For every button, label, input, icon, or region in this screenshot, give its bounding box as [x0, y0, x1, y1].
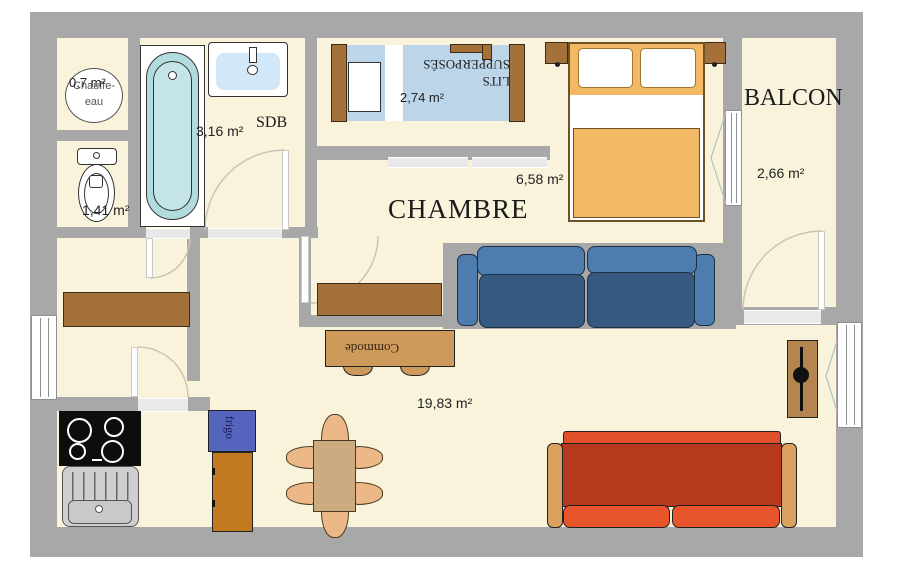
- balcon-name: BALCON: [744, 85, 843, 112]
- wall-wc-sdb: [128, 38, 140, 230]
- living-area: 19,83 m²: [417, 395, 472, 411]
- blue-sofa-seat-cushion-1: [479, 274, 585, 328]
- tv-stand: [793, 367, 809, 383]
- sdb-door-threshold: [208, 228, 282, 239]
- sdb-area: 3,16 m²: [196, 123, 243, 139]
- kitchen-sink-drainer-lines: [72, 472, 129, 500]
- bunk-bed-pillow: [348, 62, 381, 112]
- shelf-entry: [63, 292, 190, 327]
- nightstand-left-knob: [555, 62, 560, 67]
- alcove-sliding-panel-2: [472, 157, 547, 168]
- window-chambre-balcon: [725, 110, 742, 206]
- sdb-name: SDB: [256, 114, 287, 132]
- wall-below-wc: [57, 227, 146, 238]
- nightstand-left: [545, 42, 568, 64]
- dining-table: [313, 440, 356, 512]
- chambre-name: CHAMBRE: [388, 194, 529, 225]
- stove-burner-bl: [69, 443, 86, 460]
- balcon-door-threshold: [744, 310, 821, 324]
- entry-door-threshold: [138, 398, 188, 412]
- wc-area: 1,41 m²: [82, 202, 129, 218]
- chauffe-eau-label-line2: eau: [65, 96, 123, 108]
- balcon-area: 2,66 m²: [757, 165, 804, 181]
- bunk-alcove-area: 2,74 m²: [400, 90, 444, 105]
- wall-below-sdb-mid: [190, 227, 208, 238]
- alcove-sliding-panel-1: [388, 157, 468, 168]
- blue-sofa-back-cushion-2: [587, 246, 697, 274]
- nightstand-right-knob: [712, 62, 717, 67]
- wall-kitchen-left: [57, 397, 138, 411]
- stove-burner-tr: [104, 417, 124, 437]
- blue-sofa-back-cushion-1: [477, 246, 585, 276]
- washbasin-faucet: [249, 47, 257, 63]
- wall-chambre-nook: [300, 315, 457, 327]
- wall-sdb-chambre: [305, 38, 317, 238]
- balcon-door-leaf: [818, 231, 825, 310]
- wall-left: [30, 12, 57, 557]
- bed-blanket: [573, 128, 700, 218]
- stove-control: [92, 459, 102, 461]
- red-sofa-seat-cushion-1: [563, 505, 670, 528]
- stove-burner-br: [101, 440, 124, 463]
- kitchen-sink-drain: [95, 505, 103, 513]
- window-left-wall: [31, 315, 57, 400]
- fridge-handle-1: [212, 468, 215, 475]
- toilet-tank-button: [93, 152, 100, 159]
- stove-burner-tl: [67, 418, 92, 443]
- shelf-chambre: [317, 283, 442, 316]
- red-sofa-body: [561, 443, 782, 507]
- bunk-bed-board-top: [450, 44, 483, 53]
- floor-plan: Chauffe- eau 0,7 m² 1,41 m² 3,16 m² SDB …: [0, 0, 900, 579]
- red-sofa-seat-cushion-2: [672, 505, 780, 528]
- wall-top: [30, 12, 863, 38]
- chambre-door-leaf: [301, 236, 309, 303]
- bunk-bed-board-right: [509, 44, 525, 122]
- wall-kitchen-right: [188, 397, 210, 411]
- red-sofa-armrest-right: [781, 443, 797, 528]
- bunk-bed-board-left: [331, 44, 347, 122]
- wall-bottom: [30, 527, 863, 557]
- wc-door-leaf: [146, 238, 153, 278]
- window-right-wall: [837, 322, 862, 428]
- bed-pillow-right: [640, 48, 696, 88]
- blue-sofa-seat-cushion-2: [587, 272, 695, 328]
- chauffe-eau-area: 0,7 m²: [69, 75, 106, 90]
- red-sofa-armrest-left: [547, 443, 563, 528]
- bathtub-drain: [168, 71, 177, 80]
- nightstand-right: [703, 42, 726, 64]
- wall-chauffeeau-wc: [57, 130, 128, 141]
- fridge-body: [212, 452, 253, 532]
- sdb-door-leaf: [282, 150, 289, 230]
- blue-sofa-armrest-right: [694, 254, 715, 326]
- chambre-area: 6,58 m²: [516, 171, 563, 187]
- fridge-handle-2: [212, 500, 215, 507]
- entry-door-leaf: [131, 347, 138, 397]
- toilet-seat: [89, 175, 103, 188]
- bunk-beds-label: LITS SUPPERPOSÉS: [400, 55, 510, 89]
- commode-label: Commode: [345, 340, 399, 356]
- fridge-label: frigo: [222, 416, 237, 439]
- bed-pillow-left: [578, 48, 633, 88]
- blue-sofa-armrest-left: [457, 254, 478, 326]
- washbasin-faucet-knob: [247, 65, 258, 75]
- bathtub-inner: [153, 61, 192, 211]
